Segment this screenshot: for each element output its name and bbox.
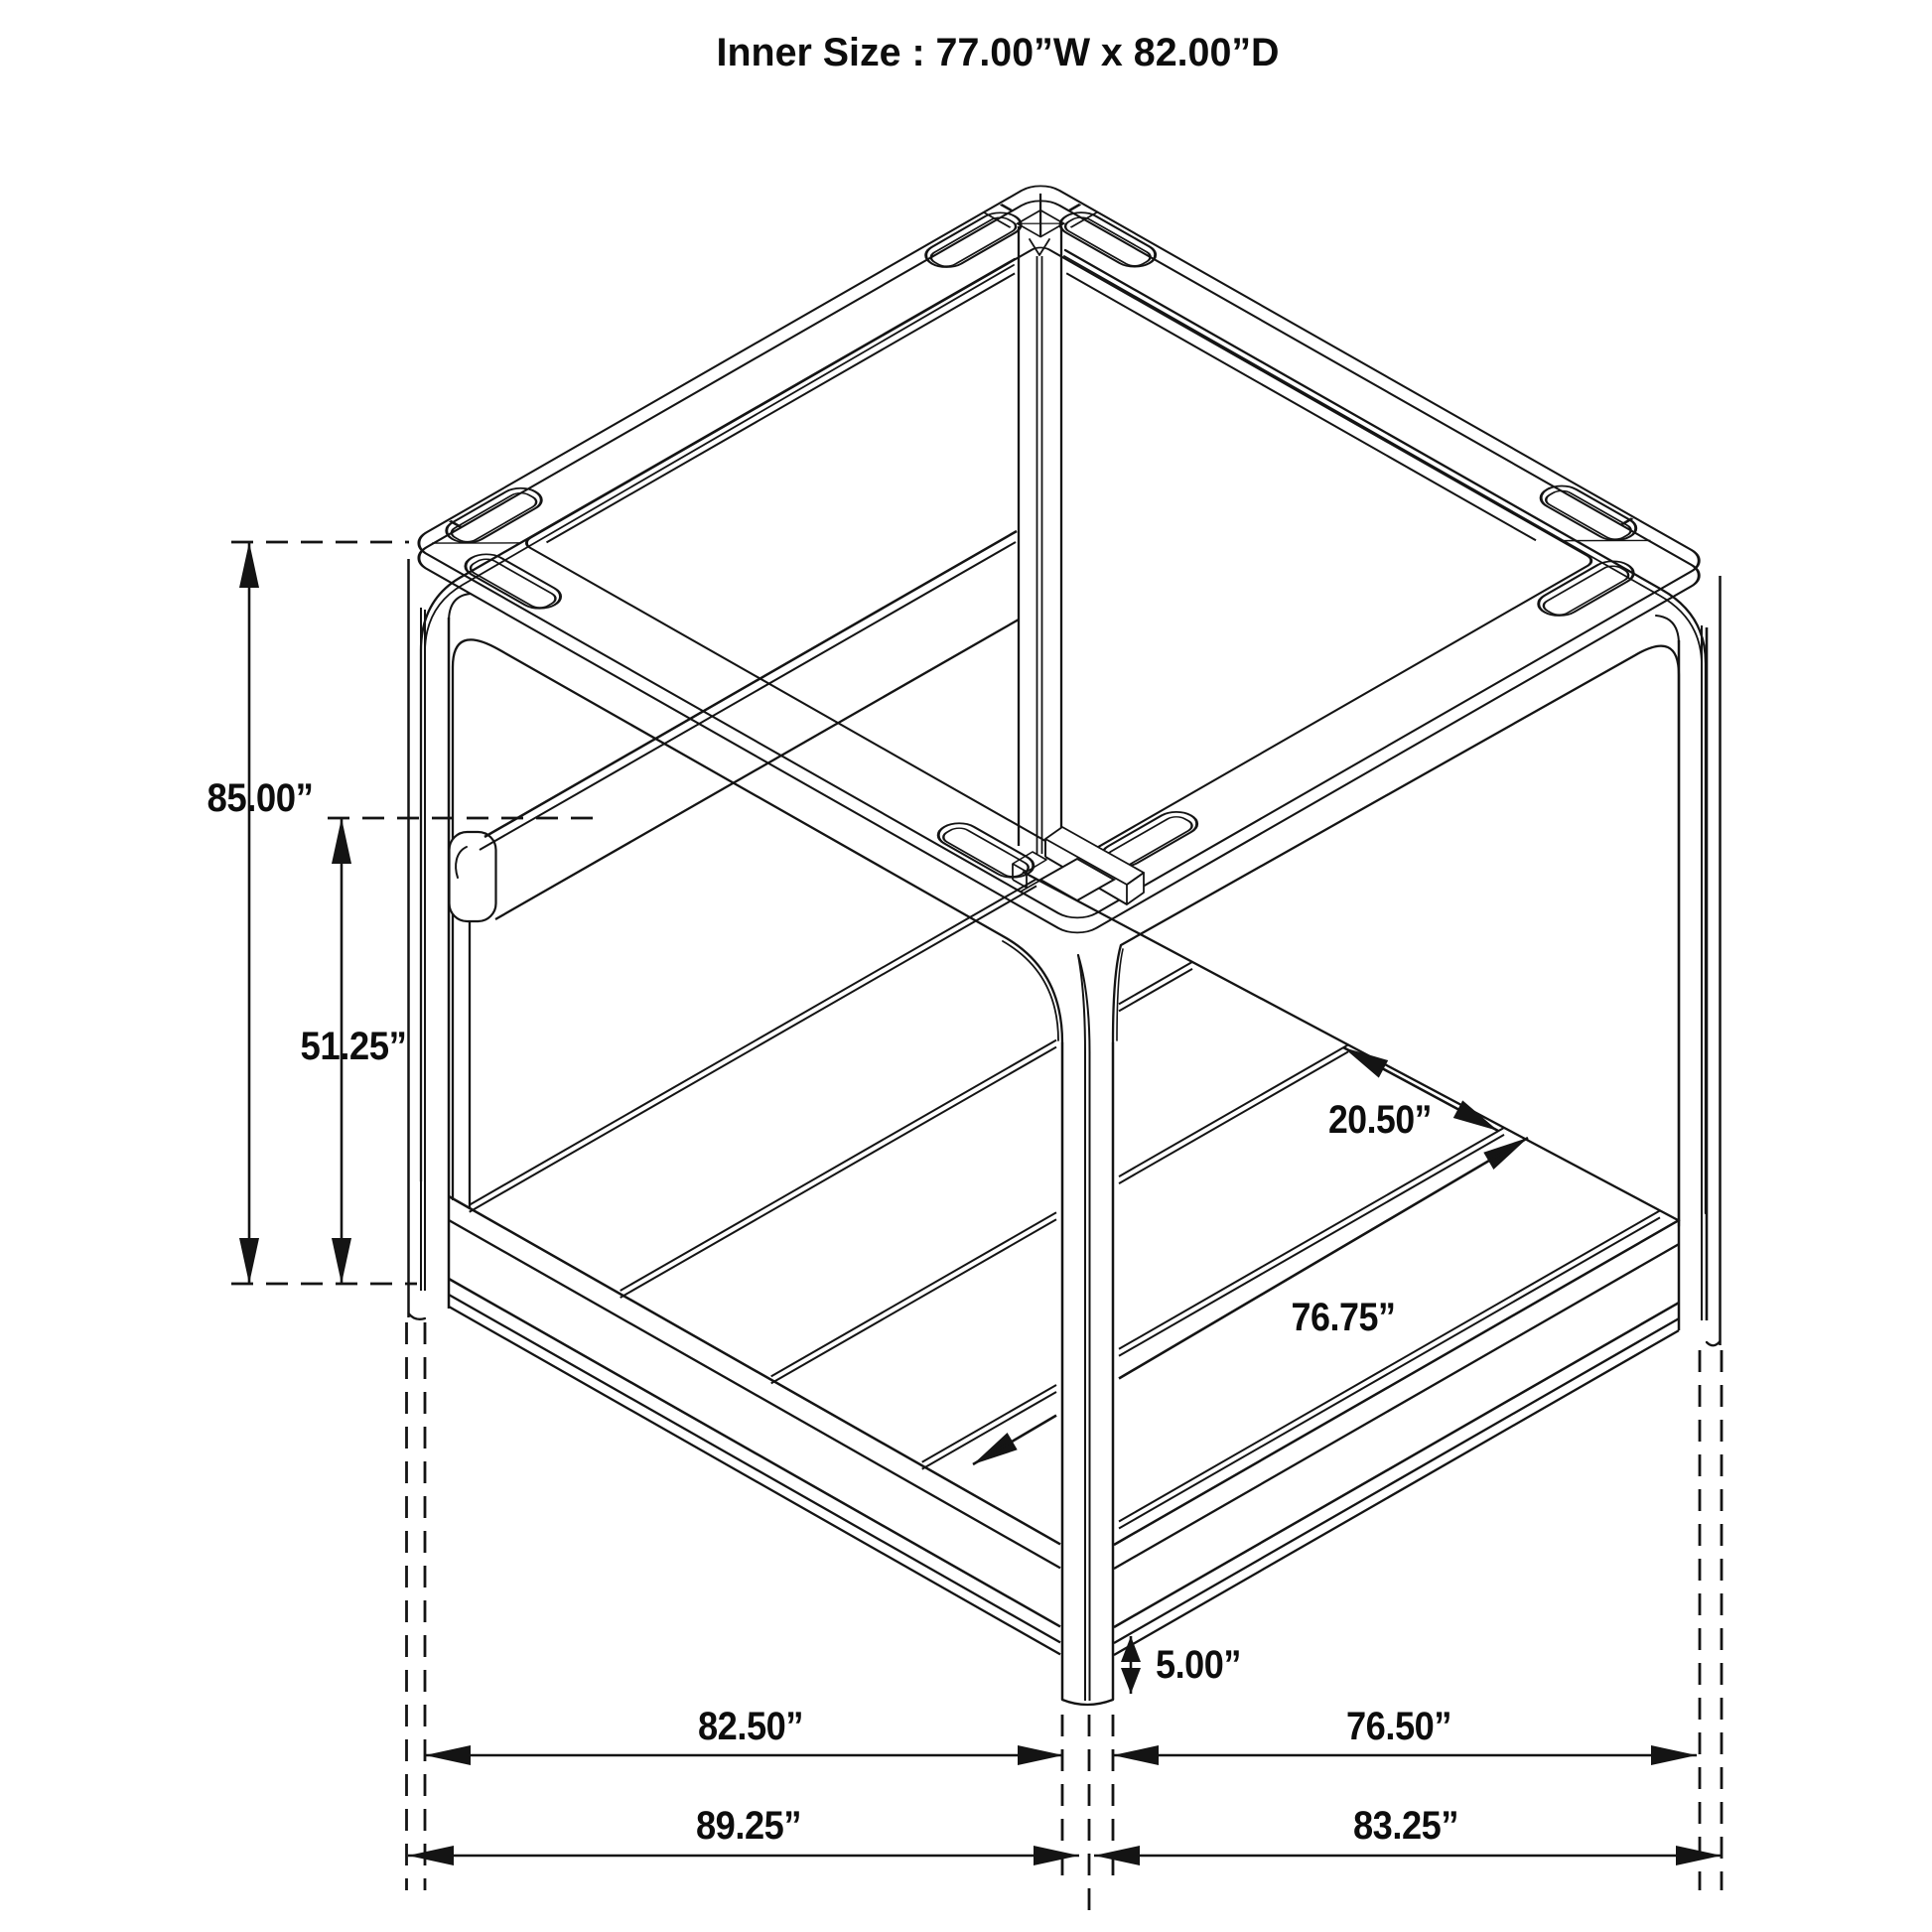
svg-text:Inner Size : 77.00”W x 82.00”D: Inner Size : 77.00”W x 82.00”D <box>717 31 1280 74</box>
svg-text:83.25”: 83.25” <box>1353 1804 1458 1848</box>
svg-text:76.50”: 76.50” <box>1346 1705 1451 1748</box>
svg-text:85.00”: 85.00” <box>207 776 314 820</box>
svg-text:20.50”: 20.50” <box>1328 1098 1432 1142</box>
svg-text:5.00”: 5.00” <box>1156 1643 1241 1687</box>
svg-text:89.25”: 89.25” <box>696 1804 801 1848</box>
svg-text:82.50”: 82.50” <box>698 1705 803 1748</box>
svg-text:51.25”: 51.25” <box>301 1025 407 1068</box>
svg-text:76.75”: 76.75” <box>1292 1296 1396 1339</box>
